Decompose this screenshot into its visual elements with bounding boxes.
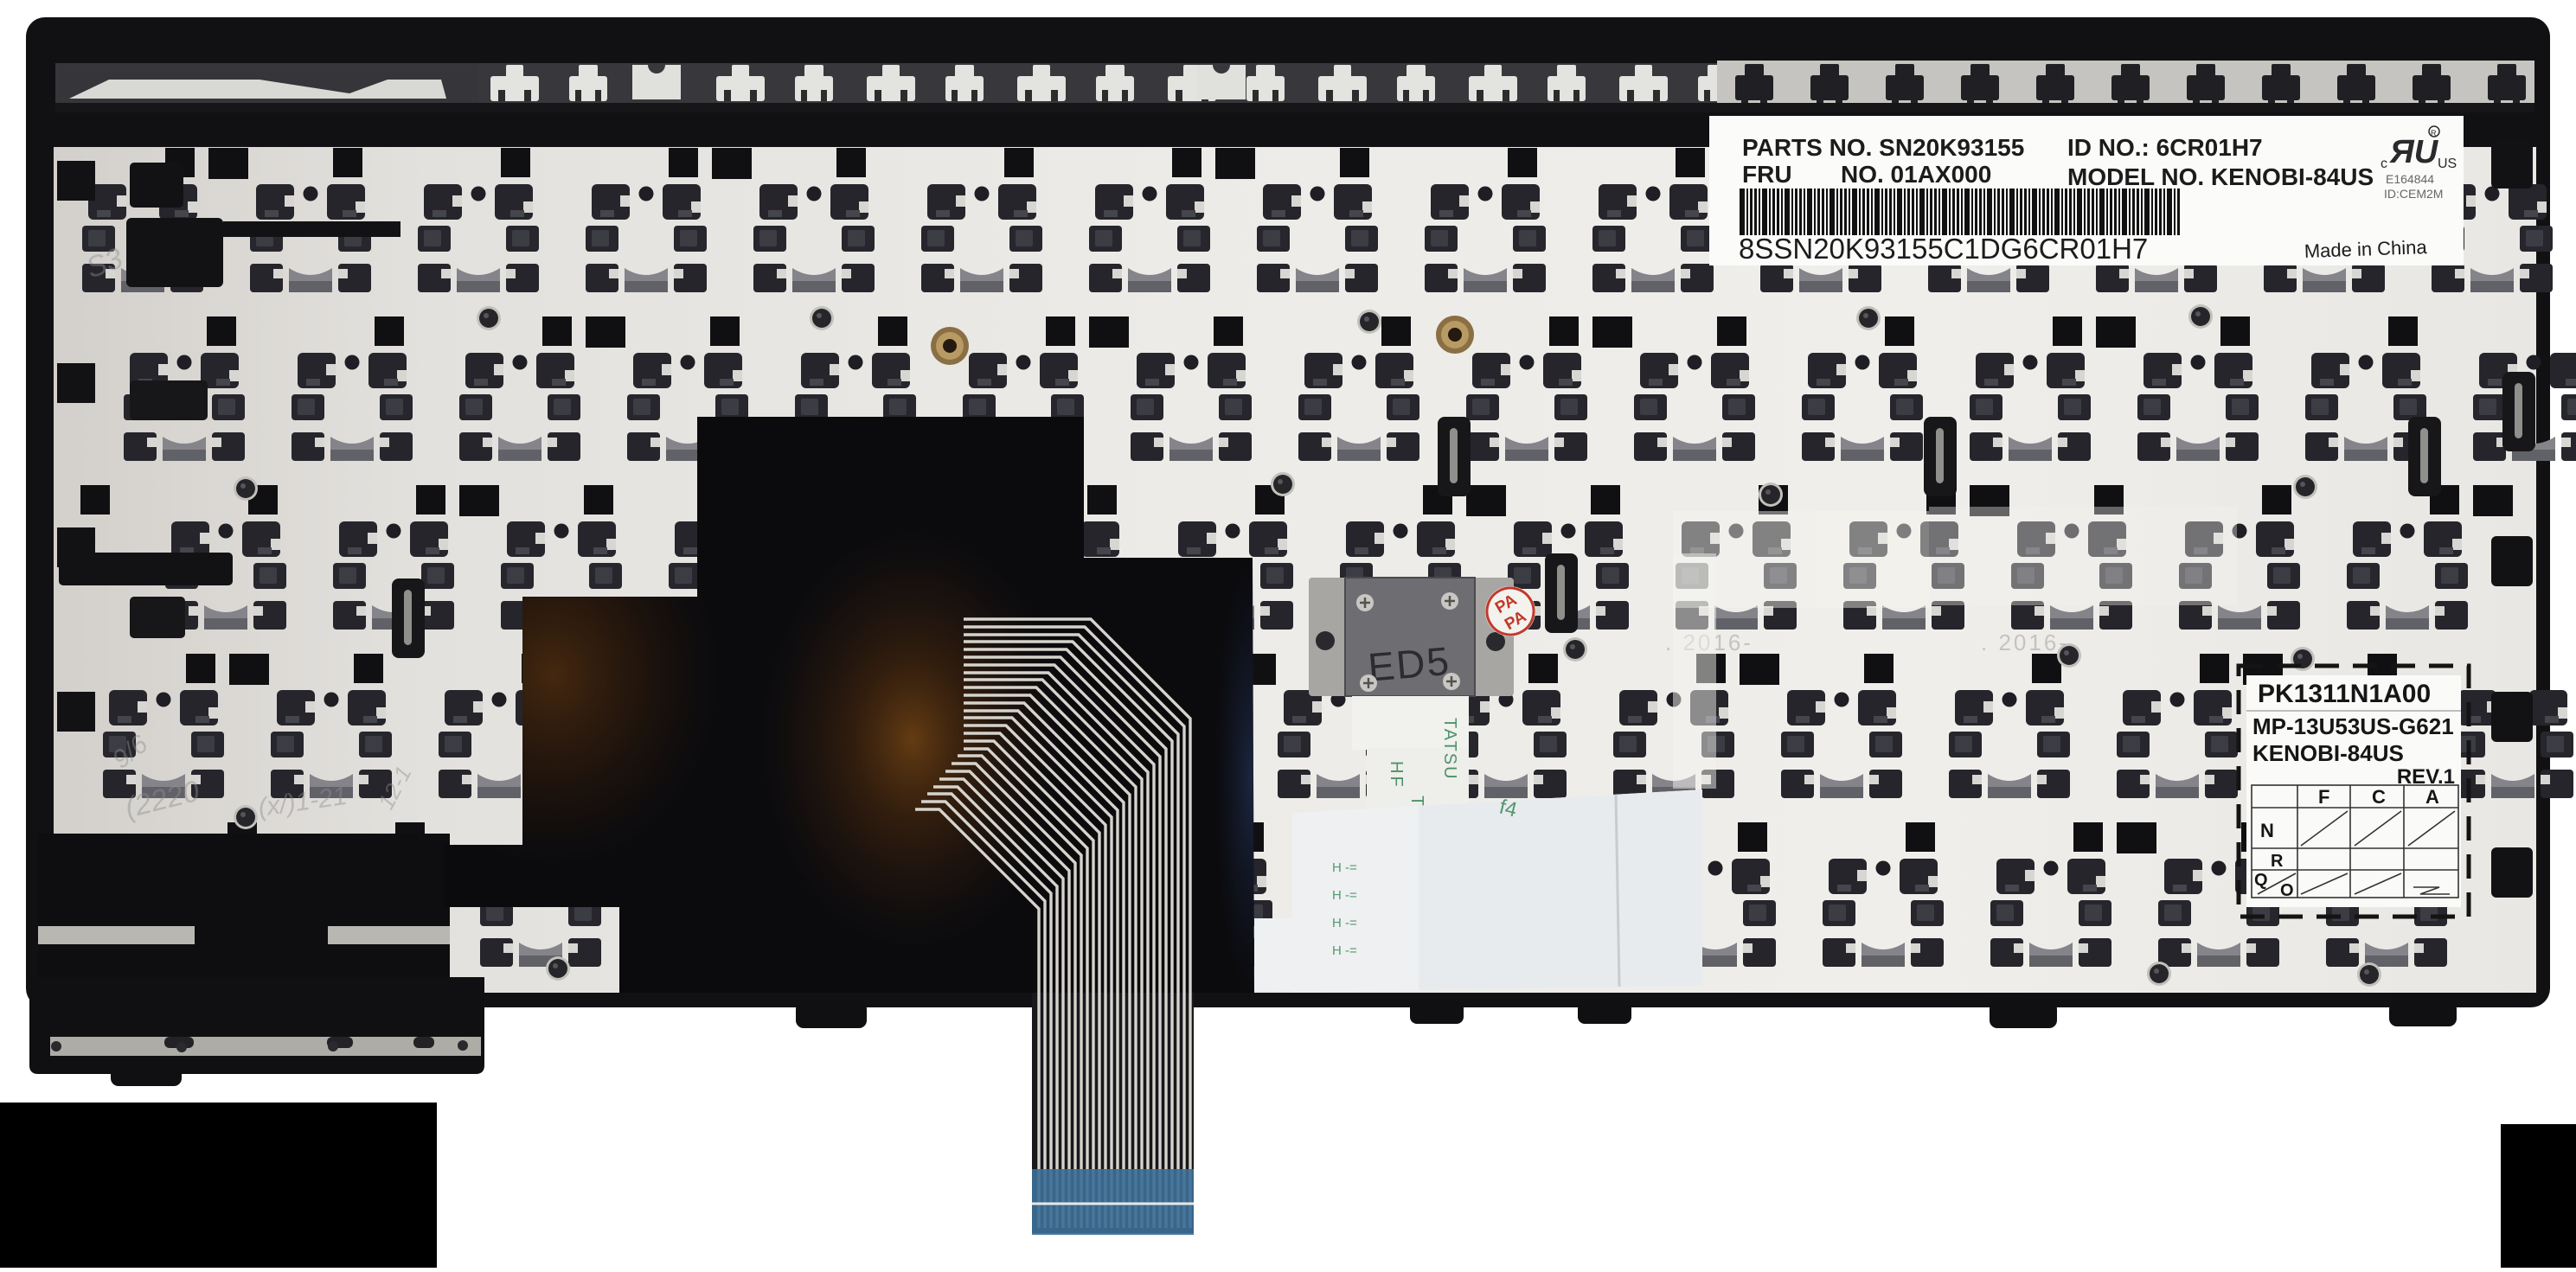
svg-text:HF: HF xyxy=(1387,761,1406,789)
svg-text:H -=: H -= xyxy=(1332,943,1357,958)
svg-text:F: F xyxy=(2318,786,2329,808)
svg-text:E164844: E164844 xyxy=(2386,172,2434,186)
svg-text:PARTS NO. SN20K93155: PARTS NO. SN20K93155 xyxy=(1742,134,2024,161)
svg-text:MP-13U53US-G621: MP-13U53US-G621 xyxy=(2252,713,2454,739)
svg-text:8SSN20K93155C1DG6CR01H7: 8SSN20K93155C1DG6CR01H7 xyxy=(1739,233,2148,265)
svg-text:TATSU: TATSU xyxy=(1440,718,1459,781)
svg-text:C: C xyxy=(2372,786,2386,808)
svg-text:KENOBI-84US: KENOBI-84US xyxy=(2252,740,2404,766)
svg-text:c: c xyxy=(2381,157,2387,171)
svg-text:NO. 01AX000: NO. 01AX000 xyxy=(1841,161,1991,188)
svg-text:ID:CEM2M: ID:CEM2M xyxy=(2384,187,2443,201)
svg-text:H -=: H -= xyxy=(1332,916,1357,930)
svg-text:ED5: ED5 xyxy=(1366,638,1452,690)
svg-text:R: R xyxy=(2431,129,2437,137)
svg-text:ID NO.: 6CR01H7: ID NO.: 6CR01H7 xyxy=(2067,134,2263,161)
svg-text:R: R xyxy=(2271,852,2284,871)
svg-text:A: A xyxy=(2425,786,2439,808)
svg-text:Q: Q xyxy=(2254,871,2268,890)
svg-text:Made in China: Made in China xyxy=(2304,236,2427,262)
svg-text:ЯU: ЯU xyxy=(2389,134,2439,170)
svg-text:US: US xyxy=(2438,157,2457,171)
svg-text:H -=: H -= xyxy=(1332,888,1357,903)
svg-text:O: O xyxy=(2280,881,2294,900)
svg-text:MODEL NO. KENOBI-84US: MODEL NO. KENOBI-84US xyxy=(2067,163,2374,190)
svg-text:. 2016-: . 2016- xyxy=(1981,630,2069,655)
svg-text:N: N xyxy=(2260,820,2274,841)
svg-text:H -=: H -= xyxy=(1332,860,1357,875)
svg-text:FRU: FRU xyxy=(1742,161,1792,188)
svg-text:PK1311N1A00: PK1311N1A00 xyxy=(2258,680,2431,708)
